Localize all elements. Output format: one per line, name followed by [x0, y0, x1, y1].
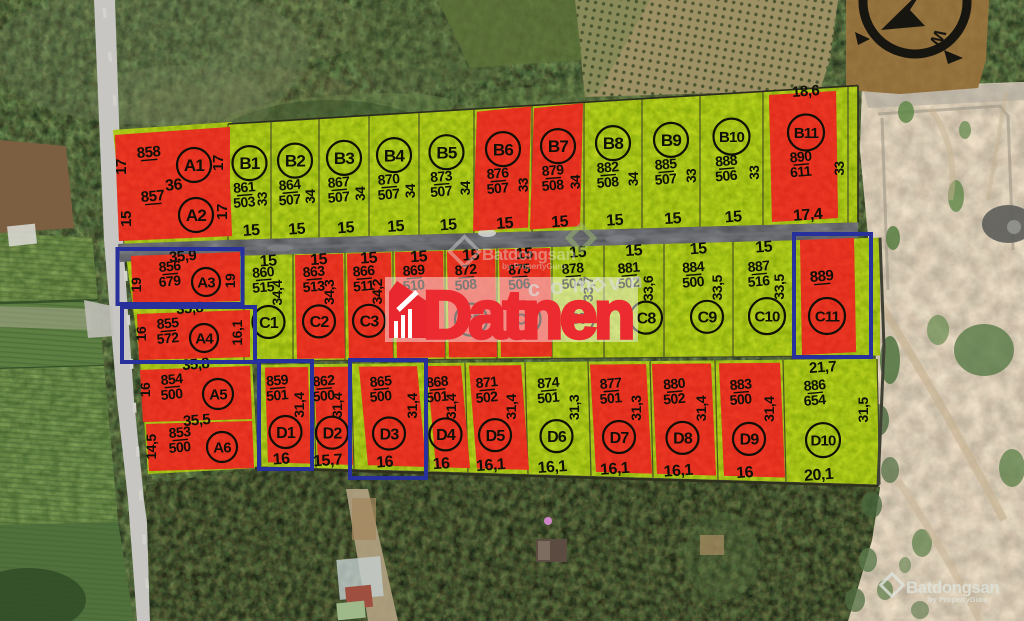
svg-text:500: 500: [160, 385, 184, 403]
svg-text:C1: C1: [259, 315, 279, 332]
svg-text:A6: A6: [213, 439, 231, 456]
svg-text:502: 502: [475, 388, 499, 406]
svg-text:B7: B7: [548, 137, 568, 156]
svg-text:501: 501: [265, 386, 289, 404]
svg-text:D7: D7: [610, 430, 630, 447]
svg-text:B4: B4: [384, 146, 405, 165]
svg-text:33: 33: [684, 168, 699, 183]
svg-text:34: 34: [568, 174, 583, 189]
svg-text:33,5: 33,5: [771, 274, 787, 300]
svg-text:34,3: 34,3: [321, 279, 337, 305]
svg-text:B11: B11: [794, 125, 819, 142]
svg-text:34: 34: [403, 183, 418, 198]
svg-text:17: 17: [214, 204, 231, 220]
svg-text:31,4: 31,4: [291, 392, 307, 418]
svg-text:611: 611: [789, 163, 812, 181]
svg-text:503: 503: [232, 193, 256, 211]
svg-text:34: 34: [353, 186, 368, 201]
svg-text:507: 507: [486, 179, 510, 197]
svg-text:A2: A2: [186, 206, 206, 225]
svg-text:501: 501: [599, 389, 623, 407]
svg-text:507: 507: [429, 182, 453, 200]
svg-text:507: 507: [654, 170, 678, 188]
svg-text:15: 15: [288, 221, 307, 239]
svg-text:A3: A3: [197, 274, 215, 291]
svg-text:34: 34: [626, 171, 641, 186]
svg-text:31,4: 31,4: [503, 394, 519, 420]
svg-text:16: 16: [133, 326, 149, 341]
svg-text:16,1: 16,1: [229, 320, 245, 346]
svg-text:500: 500: [168, 438, 192, 456]
svg-text:16,1: 16,1: [537, 458, 568, 477]
svg-text:A5: A5: [209, 386, 227, 403]
svg-text:B9: B9: [661, 131, 681, 150]
svg-text:500: 500: [729, 390, 753, 408]
svg-text:by PropertyGuru: by PropertyGuru: [928, 595, 988, 604]
svg-text:889: 889: [809, 267, 834, 286]
svg-text:508: 508: [541, 176, 565, 194]
svg-text:B3: B3: [334, 149, 354, 168]
svg-text:572: 572: [156, 329, 180, 347]
svg-text:33: 33: [255, 191, 270, 206]
svg-text:31,4: 31,4: [761, 396, 777, 422]
svg-text:36: 36: [165, 176, 184, 194]
svg-text:B10: B10: [719, 129, 745, 146]
svg-text:15: 15: [664, 210, 683, 228]
svg-text:16,1: 16,1: [663, 462, 694, 481]
svg-text:B1: B1: [239, 154, 259, 173]
svg-text:33: 33: [832, 161, 847, 176]
svg-text:15: 15: [118, 211, 135, 227]
svg-text:31,4: 31,4: [329, 392, 345, 418]
svg-text:501: 501: [536, 389, 560, 407]
svg-text:17: 17: [210, 155, 227, 171]
svg-text:502: 502: [662, 390, 686, 408]
svg-text:858: 858: [136, 143, 161, 162]
svg-text:33,5: 33,5: [709, 274, 725, 300]
svg-text:17,4: 17,4: [793, 206, 824, 225]
svg-text:A1: A1: [184, 156, 204, 175]
svg-text:17: 17: [113, 159, 130, 175]
svg-text:C3: C3: [360, 314, 380, 331]
svg-text:A4: A4: [195, 330, 214, 347]
svg-text:35,8: 35,8: [181, 355, 210, 374]
svg-text:C9: C9: [698, 310, 718, 327]
svg-text:15: 15: [551, 213, 570, 231]
svg-text:516: 516: [747, 272, 771, 290]
svg-text:31,5: 31,5: [855, 397, 871, 423]
svg-text:D3: D3: [380, 426, 400, 443]
svg-text:507: 507: [327, 188, 351, 206]
svg-text:by PropertyGuru: by PropertyGuru: [502, 262, 566, 271]
svg-text:D10: D10: [810, 433, 836, 450]
svg-text:B8: B8: [603, 134, 623, 153]
svg-text:15: 15: [625, 242, 644, 260]
svg-text:C8: C8: [637, 310, 657, 327]
svg-text:C10: C10: [754, 309, 780, 326]
svg-text:679: 679: [158, 272, 182, 290]
svg-text:B2: B2: [285, 152, 305, 171]
svg-text:D9: D9: [740, 432, 760, 449]
svg-text:31,4: 31,4: [404, 393, 420, 419]
svg-text:D8: D8: [673, 431, 693, 448]
svg-text:18,6: 18,6: [792, 82, 820, 101]
svg-text:507: 507: [377, 185, 401, 203]
svg-text:654: 654: [803, 391, 827, 409]
svg-text:C11: C11: [815, 308, 840, 325]
svg-text:Datnen: Datnen: [423, 277, 632, 353]
svg-text:D6: D6: [547, 429, 567, 446]
svg-text:21,7: 21,7: [809, 358, 837, 377]
svg-text:D5: D5: [486, 428, 506, 445]
svg-text:16,1: 16,1: [600, 460, 631, 479]
svg-text:34: 34: [303, 189, 318, 204]
svg-text:19: 19: [222, 273, 238, 288]
svg-text:506: 506: [714, 167, 738, 185]
svg-text:C2: C2: [310, 314, 330, 331]
svg-text:34,4: 34,4: [269, 280, 285, 306]
svg-text:31,3: 31,3: [628, 395, 644, 421]
svg-text:500: 500: [681, 273, 705, 291]
svg-text:15: 15: [337, 219, 356, 237]
svg-text:34: 34: [458, 180, 473, 195]
svg-text:B6: B6: [493, 140, 513, 159]
svg-text:D2: D2: [323, 425, 343, 442]
svg-text:15: 15: [387, 218, 406, 236]
svg-text:16,1: 16,1: [476, 456, 507, 475]
svg-text:15: 15: [606, 212, 625, 230]
svg-text:15: 15: [242, 222, 261, 240]
svg-text:19: 19: [128, 277, 144, 292]
svg-text:15: 15: [689, 240, 708, 258]
svg-text:33: 33: [516, 177, 531, 192]
svg-text:15: 15: [724, 208, 743, 226]
svg-text:857: 857: [140, 187, 165, 206]
svg-text:16: 16: [432, 455, 451, 473]
svg-text:D4: D4: [436, 427, 456, 444]
svg-text:B5: B5: [436, 143, 456, 162]
svg-text:20,1: 20,1: [804, 466, 835, 485]
svg-text:14,5: 14,5: [143, 434, 159, 460]
svg-text:15: 15: [755, 238, 774, 256]
svg-text:16: 16: [376, 453, 395, 471]
svg-text:16: 16: [736, 464, 755, 482]
svg-text:34,2: 34,2: [369, 278, 385, 304]
svg-text:33: 33: [747, 165, 762, 180]
svg-text:500: 500: [369, 387, 393, 405]
svg-text:15,7: 15,7: [313, 451, 344, 470]
svg-text:508: 508: [596, 173, 620, 191]
svg-text:31,4: 31,4: [693, 395, 709, 421]
svg-text:16: 16: [272, 450, 291, 468]
svg-text:D1: D1: [276, 425, 296, 442]
svg-text:15: 15: [496, 215, 515, 233]
svg-text:16: 16: [137, 382, 153, 397]
svg-text:31,4: 31,4: [443, 393, 459, 419]
svg-text:31,3: 31,3: [566, 394, 582, 420]
svg-text:15: 15: [439, 216, 458, 234]
svg-text:507: 507: [278, 191, 302, 209]
